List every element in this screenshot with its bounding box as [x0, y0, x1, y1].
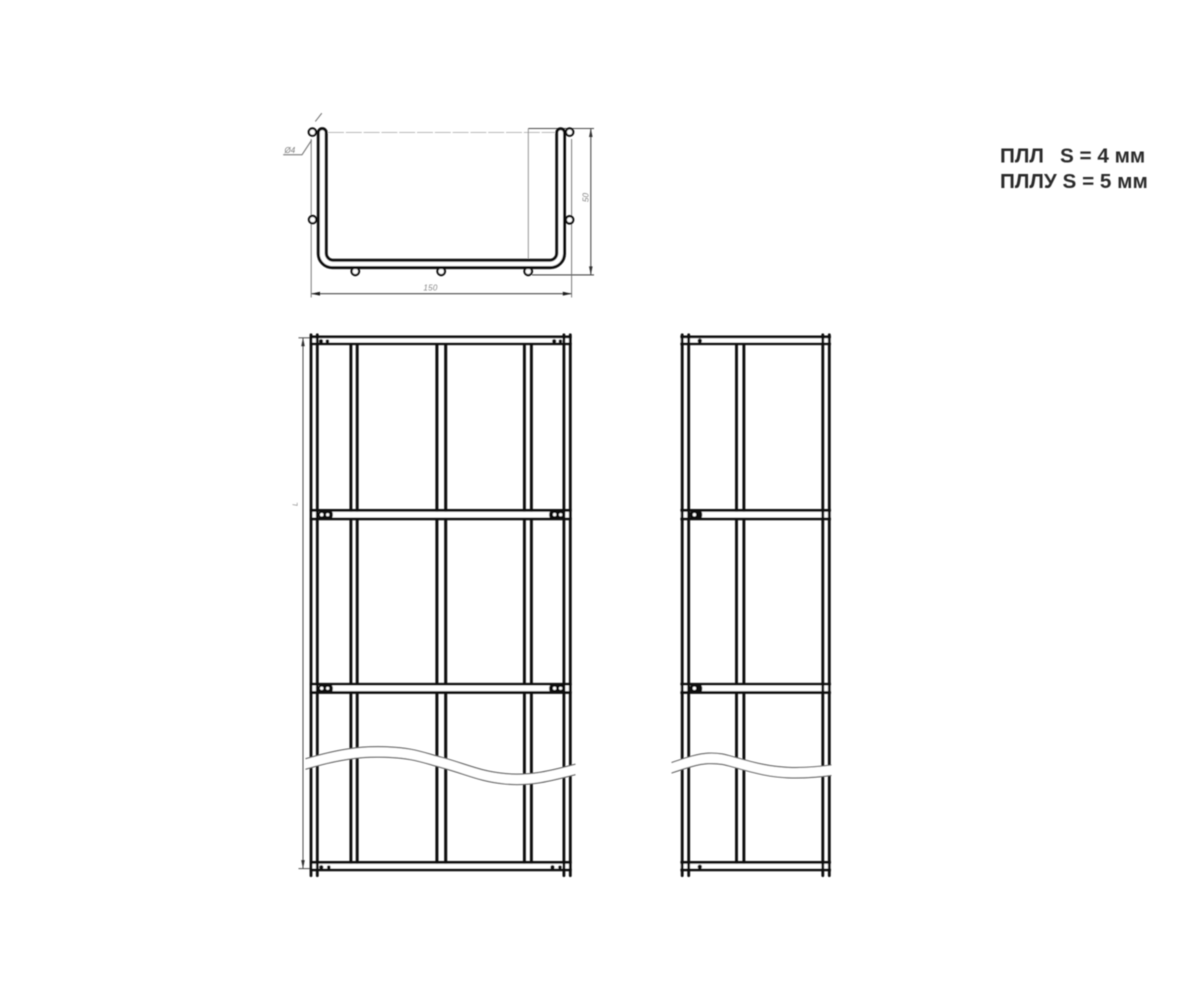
svg-text:L: L	[293, 502, 300, 506]
svg-text:50: 50	[581, 193, 590, 203]
svg-text:S = 4 мм: S = 4 мм	[1060, 144, 1145, 167]
svg-text:Ø4: Ø4	[284, 146, 296, 155]
svg-text:150: 150	[423, 283, 437, 292]
svg-text:ПЛЛУ S = 5 мм: ПЛЛУ S = 5 мм	[1000, 170, 1148, 193]
svg-text:ПЛЛ: ПЛЛ	[1000, 144, 1044, 167]
